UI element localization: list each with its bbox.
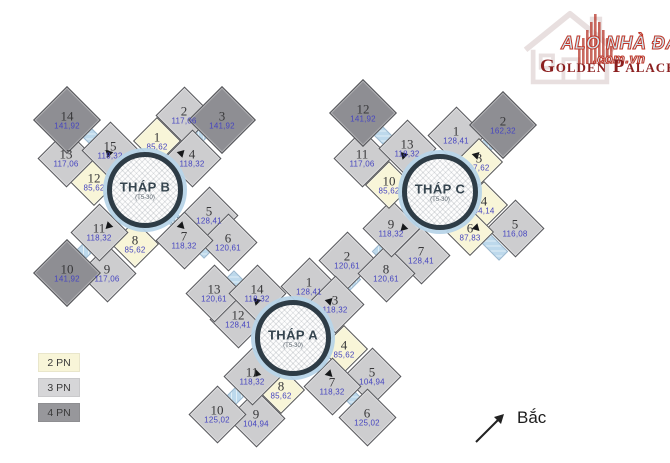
unit-area: 120,61 [334, 263, 360, 271]
unit-label: 15118,32 [97, 139, 122, 160]
unit-number: 15 [97, 139, 122, 152]
unit-label: 7118,32 [319, 375, 344, 396]
north-label: Bắc [517, 408, 546, 428]
unit-label: 9118,32 [378, 217, 403, 238]
unit-number: 2 [171, 104, 196, 117]
unit-area: 118,32 [244, 296, 269, 304]
unit-label: 2162,32 [490, 114, 516, 135]
unit-area: 117,06 [349, 161, 374, 169]
unit-label: 10125,02 [204, 403, 230, 424]
unit-area: 141,92 [54, 123, 80, 131]
unit-label: 13118,32 [394, 137, 419, 158]
unit-number: 13 [201, 282, 227, 295]
unit-number: 8 [124, 233, 145, 246]
unit-number: 7 [319, 375, 344, 388]
unit-area: 118,32 [86, 235, 111, 243]
unit-number: 5 [196, 204, 222, 217]
unit-number: 7 [171, 229, 196, 242]
unit-number: 6 [459, 221, 480, 234]
unit-area: 104,94 [243, 421, 269, 429]
unit-number: 14 [54, 109, 80, 122]
unit-area: 120,61 [215, 245, 241, 253]
unit-label: 8120,61 [373, 262, 399, 283]
unit-area: 104,94 [359, 379, 385, 387]
unit-area: 118,32 [171, 243, 196, 251]
unit-label: 5116,08 [502, 217, 527, 238]
unit-area: 141,92 [350, 116, 376, 124]
unit-label: 12128,41 [225, 308, 251, 329]
unit-number: 9 [243, 407, 269, 420]
unit-number: 8 [373, 262, 399, 275]
tower-name: THÁP A [268, 328, 318, 343]
unit-number: 4 [179, 147, 204, 160]
unit-label: 9104,94 [243, 407, 269, 428]
unit-number: 12 [225, 308, 251, 321]
unit-label: 687,83 [459, 221, 480, 242]
unit-label: 2117,06 [171, 104, 196, 125]
unit-label: 7128,41 [408, 244, 434, 265]
unit-number: 2 [334, 249, 360, 262]
unit-area: 118,32 [179, 161, 204, 169]
unit-number: 3 [209, 109, 235, 122]
unit-area: 85,62 [333, 352, 354, 360]
north-arrow-icon [468, 404, 516, 448]
unit-label: 387,62 [468, 151, 489, 172]
tower-floors: (T5-30) [135, 195, 155, 201]
unit-number: 1 [146, 130, 167, 143]
unit-label: 885,62 [124, 233, 145, 254]
unit-label: 11118,32 [86, 221, 111, 242]
unit-area: 128,41 [225, 322, 251, 330]
unit-area: 85,62 [146, 144, 167, 152]
project-brand-name: Golden Palace [540, 56, 670, 78]
unit-label: 9117,06 [94, 262, 119, 283]
tower-name: THÁP C [415, 182, 466, 197]
unit-area: 117,06 [53, 161, 78, 169]
unit-area: 125,02 [204, 417, 230, 425]
unit-area: 141,92 [54, 276, 80, 284]
unit-label: 6120,61 [215, 231, 241, 252]
unit-area: 87,83 [459, 235, 480, 243]
unit-number: 7 [408, 244, 434, 257]
unit-number: 11 [349, 147, 374, 160]
unit-area: 118,32 [97, 153, 122, 161]
tower-floors: (T5-30) [430, 197, 450, 203]
unit-label: 14141,92 [54, 109, 80, 130]
unit-label: 13120,61 [201, 282, 227, 303]
unit-area: 118,32 [322, 307, 347, 315]
apartment-type-legend: 2 PN 3 PN 4 PN [38, 353, 80, 428]
unit-label: 12141,92 [350, 102, 376, 123]
unit-label: 11117,06 [349, 147, 374, 168]
tower-floors: (T5-30) [283, 343, 303, 349]
unit-area: 120,61 [373, 276, 399, 284]
unit-area: 117,06 [171, 118, 196, 126]
unit-area: 94,14 [473, 208, 494, 216]
unit-number: 12 [350, 102, 376, 115]
unit-label: 3141,92 [209, 109, 235, 130]
unit-number: 5 [359, 365, 385, 378]
unit-area: 85,62 [124, 247, 145, 255]
unit-number: 6 [215, 231, 241, 244]
unit-area: 128,41 [196, 218, 222, 226]
unit-area: 128,41 [296, 289, 322, 297]
unit-label: 5104,94 [359, 365, 385, 386]
unit-label: 10141,92 [54, 262, 80, 283]
unit-area: 128,41 [443, 138, 469, 146]
unit-label: 2120,61 [334, 249, 360, 270]
unit-number: 10 [378, 174, 399, 187]
unit-number: 11 [86, 221, 111, 234]
unit-label: 185,62 [146, 130, 167, 151]
unit-area: 118,32 [378, 231, 403, 239]
unit-area: 162,32 [490, 128, 516, 136]
unit-label: 1128,41 [443, 124, 469, 145]
tower-name: THÁP B [120, 180, 171, 195]
unit-number: 3 [468, 151, 489, 164]
unit-label: 5128,41 [196, 204, 222, 225]
legend-3pn-swatch: 3 PN [38, 378, 80, 397]
unit-number: 10 [54, 262, 80, 275]
unit-number: 1 [443, 124, 469, 137]
unit-number: 10 [204, 403, 230, 416]
unit-label: 485,62 [333, 338, 354, 359]
unit-number: 8 [270, 379, 291, 392]
unit-number: 13 [394, 137, 419, 150]
unit-number: 1 [296, 275, 322, 288]
unit-area: 85,62 [83, 185, 104, 193]
unit-area: 118,32 [319, 389, 344, 397]
unit-area: 116,08 [502, 231, 527, 239]
unit-number: 9 [378, 217, 403, 230]
floor-plan-canvas: ALO NHÀ ĐẤT .com.vn Golden Palace 185,62… [0, 0, 670, 463]
unit-area: 118,32 [239, 379, 264, 387]
unit-number: 14 [244, 282, 269, 295]
unit-area: 85,62 [378, 188, 399, 196]
unit-number: 9 [94, 262, 119, 275]
unit-label: 3118,32 [322, 293, 347, 314]
unit-label: 4118,32 [179, 147, 204, 168]
unit-number: 13 [53, 147, 78, 160]
unit-label: 13117,06 [53, 147, 78, 168]
unit-area: 128,41 [408, 258, 434, 266]
unit-number: 11 [239, 365, 264, 378]
unit-label: 14118,32 [244, 282, 269, 303]
unit-number: 6 [354, 406, 380, 419]
legend-4pn-swatch: 4 PN [38, 403, 80, 422]
unit-area: 117,06 [94, 276, 119, 284]
unit-area: 120,61 [201, 296, 227, 304]
unit-area: 118,32 [394, 151, 419, 159]
unit-label: 11118,32 [239, 365, 264, 386]
unit-area: 85,62 [270, 393, 291, 401]
unit-label: 7118,32 [171, 229, 196, 250]
unit-area: 141,92 [209, 123, 235, 131]
unit-number: 2 [490, 114, 516, 127]
legend-2pn-swatch: 2 PN [38, 353, 80, 372]
unit-label: 1085,62 [378, 174, 399, 195]
unit-number: 12 [83, 171, 104, 184]
unit-number: 5 [502, 217, 527, 230]
unit-label: 6125,02 [354, 406, 380, 427]
unit-label: 1128,41 [296, 275, 322, 296]
unit-label: 885,62 [270, 379, 291, 400]
unit-label: 1285,62 [83, 171, 104, 192]
unit-number: 3 [322, 293, 347, 306]
unit-number: 4 [333, 338, 354, 351]
unit-area: 125,02 [354, 420, 380, 428]
